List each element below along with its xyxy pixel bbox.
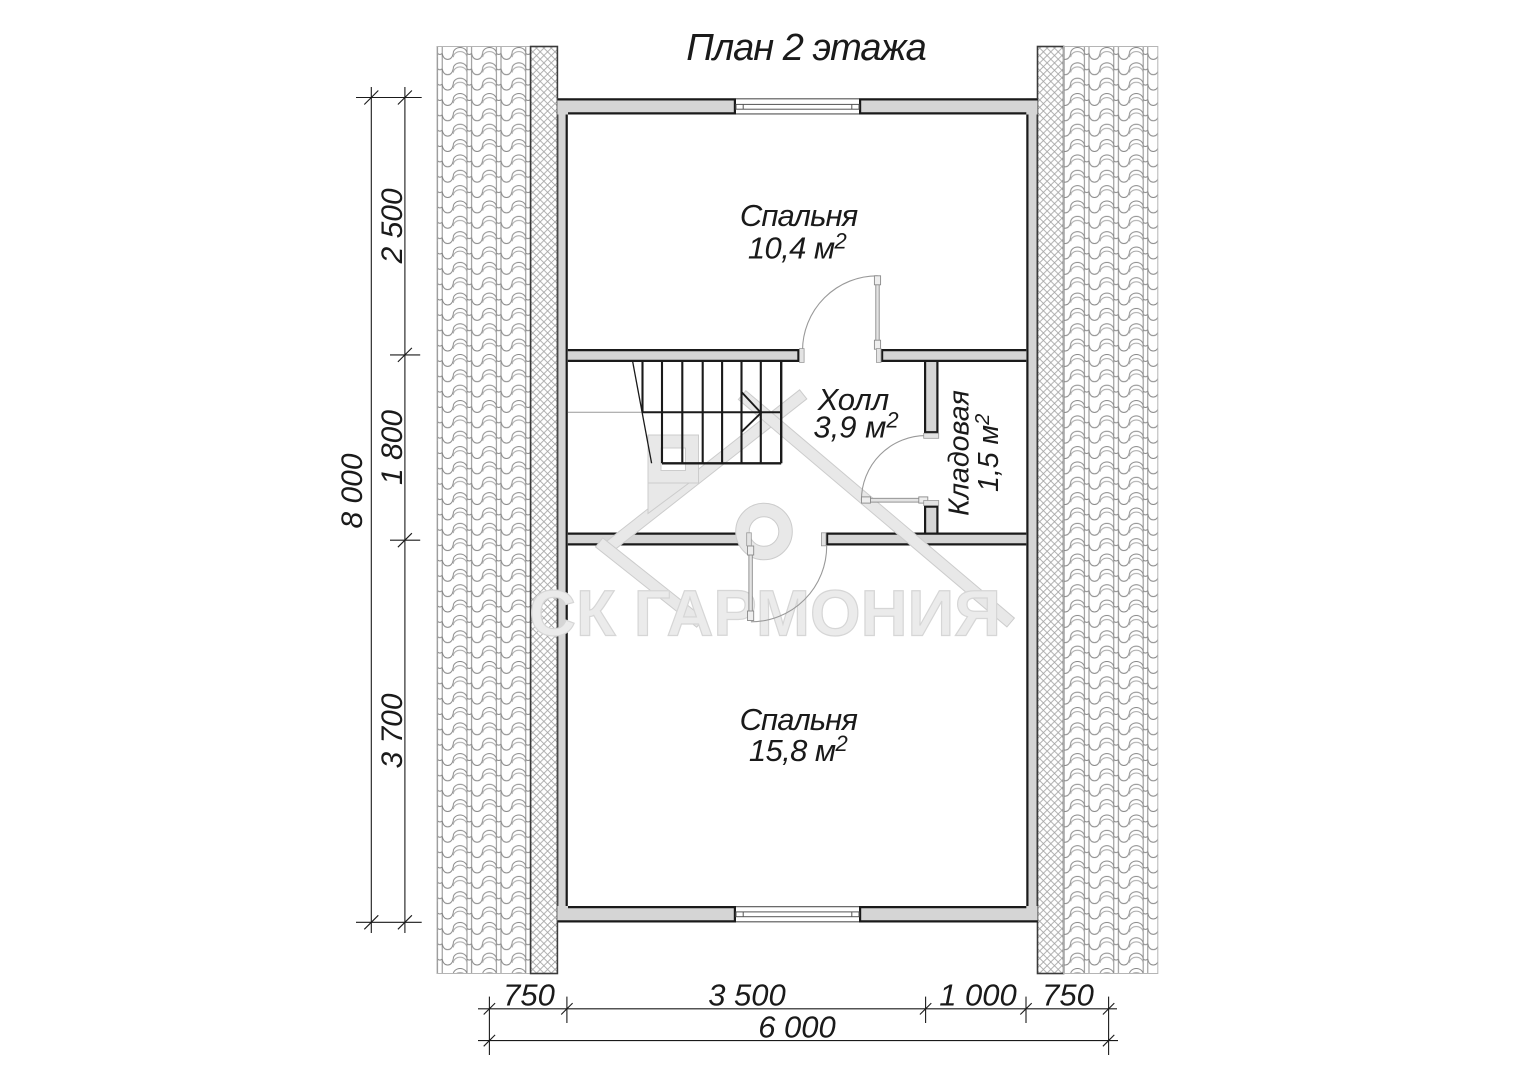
svg-text:2 500: 2 500 [376,188,409,264]
svg-text:750: 750 [503,978,555,1013]
svg-text:15,8 м2: 15,8 м2 [749,731,848,768]
svg-text:1,5 м2: 1,5 м2 [972,414,1005,492]
svg-text:1 800: 1 800 [376,410,409,485]
svg-text:3 500: 3 500 [708,978,786,1013]
svg-text:Кладовая: Кладовая [943,390,975,516]
svg-text:3 700: 3 700 [376,693,409,768]
svg-text:750: 750 [1042,978,1094,1013]
svg-text:3,9 м2: 3,9 м2 [813,408,898,445]
svg-text:1 000: 1 000 [939,978,1017,1013]
svg-text:СК ГАРМОНИЯ: СК ГАРМОНИЯ [529,577,1001,650]
svg-text:План 2 этажа: План 2 этажа [686,27,926,69]
svg-text:6 000: 6 000 [758,1010,836,1045]
svg-text:10,4 м2: 10,4 м2 [748,229,847,266]
svg-text:8 000: 8 000 [336,453,369,528]
